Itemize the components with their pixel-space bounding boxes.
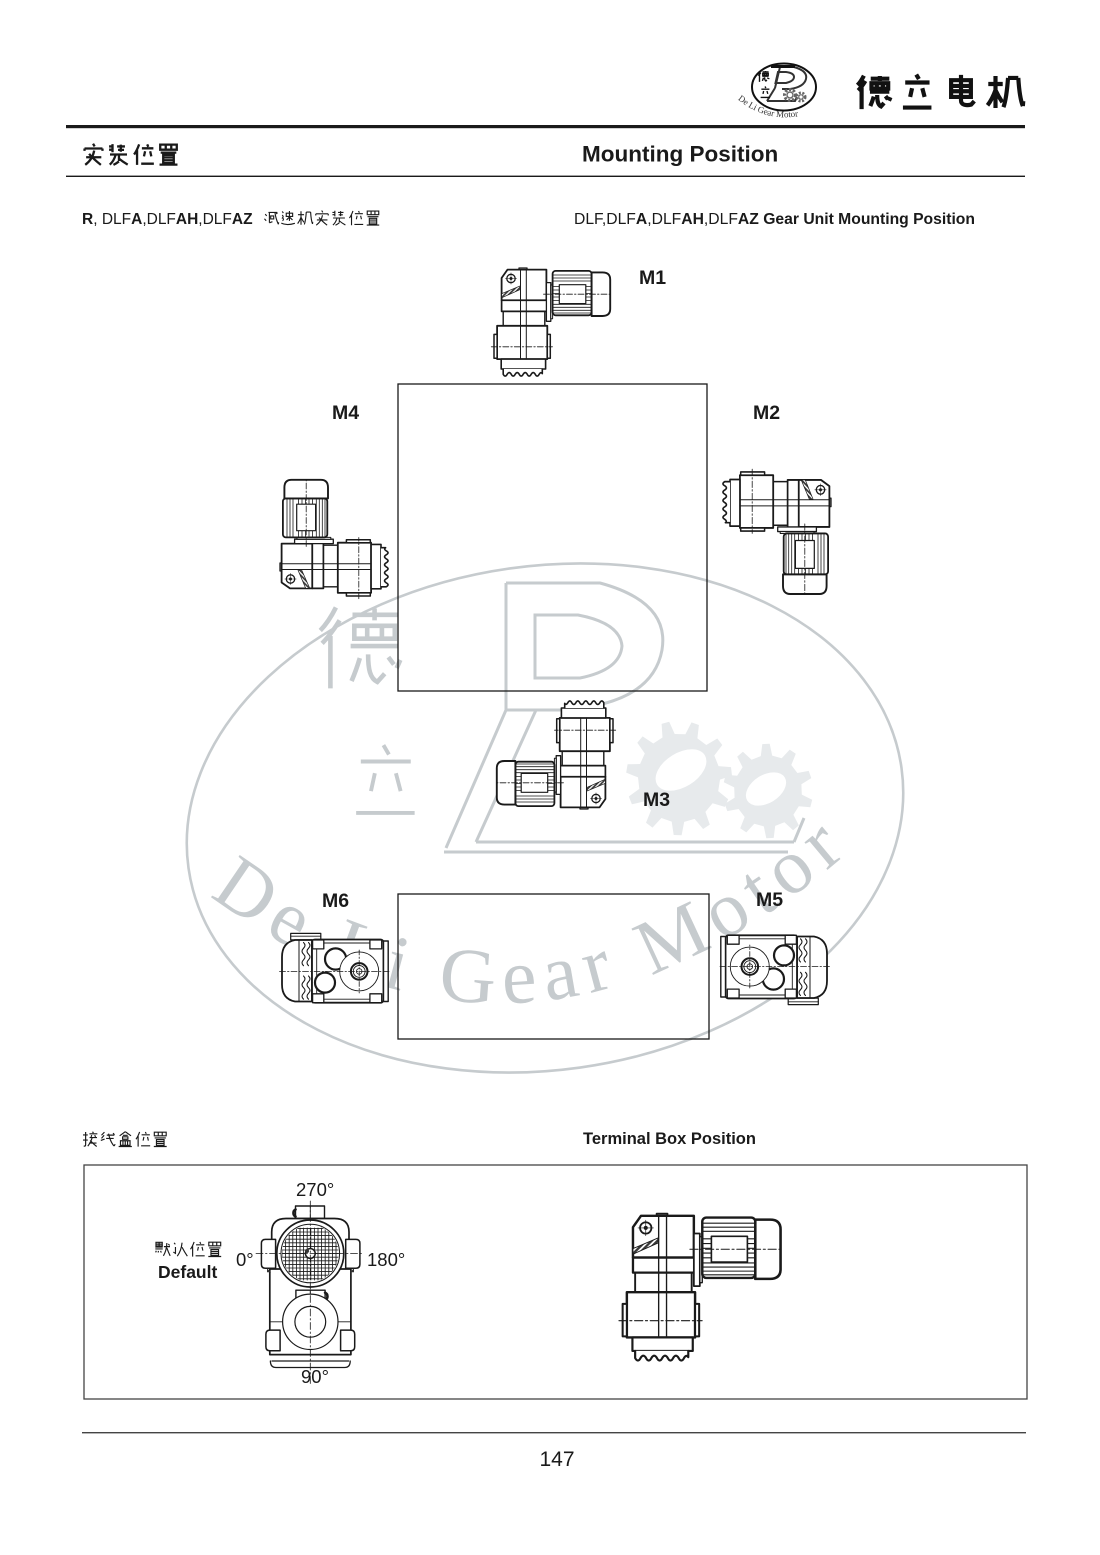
svg-text:0°: 0°: [236, 1249, 254, 1270]
svg-text:M2: M2: [753, 402, 780, 424]
svg-text:R, DLFA,DLFAH,DLFAZ: R, DLFA,DLFAH,DLFAZ: [82, 211, 253, 228]
svg-text:M6: M6: [322, 890, 349, 912]
svg-text:147: 147: [539, 1448, 574, 1471]
svg-text:M5: M5: [756, 889, 783, 911]
svg-text:Terminal Box Position: Terminal Box Position: [583, 1130, 756, 1148]
svg-text:180°: 180°: [367, 1249, 405, 1270]
svg-text:270°: 270°: [296, 1179, 334, 1200]
svg-text:90°: 90°: [301, 1366, 329, 1387]
svg-text:M3: M3: [643, 789, 670, 811]
svg-text:M1: M1: [639, 267, 666, 289]
svg-text:M4: M4: [332, 402, 359, 424]
svg-text:Mounting Position: Mounting Position: [582, 142, 778, 167]
svg-text:DLF,DLFA,DLFAH,DLFAZ Gear Unit: DLF,DLFA,DLFAH,DLFAZ Gear Unit Mounting …: [574, 211, 975, 228]
svg-text:Default: Default: [158, 1262, 217, 1282]
